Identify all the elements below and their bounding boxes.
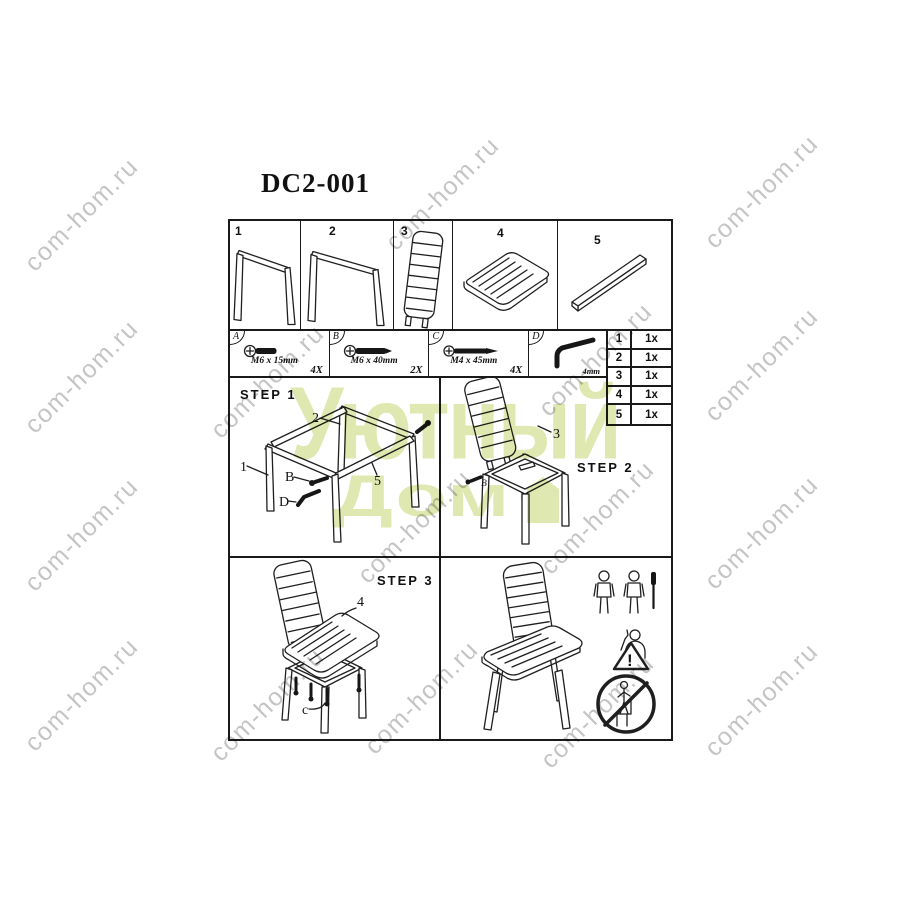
hardware-size: M4 x 45mm	[429, 356, 518, 366]
part-cell-3: 3	[394, 221, 453, 329]
step-3-panel: STEP 3	[228, 558, 441, 741]
callout-part-1: 1	[240, 460, 247, 475]
assembly-steps: STEP 1 1 2 5	[228, 376, 673, 741]
hardware-cell-c: C M4 x 45mm 4X	[429, 331, 529, 377]
qty-part: 1	[608, 331, 632, 350]
part-5-rail-drawing	[558, 227, 661, 328]
hardware-cell-d: D 4mm	[529, 331, 606, 377]
hardware-size: M6 x 40mm	[330, 356, 419, 366]
hardware-qty: 4X	[510, 365, 522, 376]
watermark-text: com-hom.ru	[19, 152, 144, 277]
part-3-backrest-drawing	[394, 227, 453, 330]
part-4-seat-drawing	[453, 227, 558, 328]
step-1-drawing: 1 2 5 B D	[230, 378, 438, 555]
qty-part: 3	[608, 368, 632, 387]
part-cell-1: 1	[230, 221, 301, 329]
qty-count: 1x	[632, 350, 671, 369]
model-title: DC2-001	[261, 168, 370, 199]
instruction-sheet: DC2-001 1 2 3	[228, 140, 673, 741]
callout-part-3: 3	[553, 427, 560, 442]
hardware-qty: 2X	[410, 365, 422, 376]
watermark-text: com-hom.ru	[19, 632, 144, 757]
qty-count: 1x	[632, 387, 671, 406]
part-cell-2: 2	[301, 221, 394, 329]
hardware-cell-a: A M6 x 15mm 4X	[230, 331, 330, 377]
callout-part-4: 4	[357, 595, 364, 610]
hardware-qty: 4X	[310, 365, 322, 376]
watermark-text: com-hom.ru	[699, 470, 824, 595]
watermark-text: com-hom.ru	[19, 472, 144, 597]
two-person-assembly-icon	[591, 570, 661, 626]
warning-icon: !	[595, 628, 657, 672]
hardware-cell-b: B M6 x 40mm 2X	[330, 331, 430, 377]
part-cell-5: 5	[558, 221, 671, 329]
page: DC2-001 1 2 3	[0, 0, 900, 900]
watermark-text: com-hom.ru	[19, 314, 144, 439]
callout-part-5: 5	[374, 474, 381, 489]
part-2-leg-frame-drawing	[301, 227, 394, 328]
callout-tool-d: D	[279, 495, 289, 510]
qty-part: 4	[608, 387, 632, 406]
part-cell-4: 4	[453, 221, 558, 329]
hardware-size: M6 x 15mm	[230, 356, 319, 366]
watermark-text: com-hom.ru	[699, 129, 824, 254]
callout-screw-c: c	[302, 703, 308, 718]
part-1-leg-frame-drawing	[230, 227, 301, 328]
qty-count: 1x	[632, 331, 671, 350]
watermark-text: com-hom.ru	[699, 637, 824, 762]
parts-table: 1 2 3	[228, 219, 673, 331]
finished-chair-panel: !	[441, 558, 673, 741]
callout-screw-b: B	[285, 470, 294, 485]
qty-count: 1x	[632, 368, 671, 387]
do-not-stand-icon	[593, 672, 659, 736]
qty-part: 5	[608, 405, 632, 424]
qty-count: 1x	[632, 405, 671, 424]
hardware-table: A M6 x 15mm 4X B M6 x 40mm 2X C	[228, 329, 608, 379]
step-3-drawing: c 4	[230, 558, 438, 737]
callout-part-2: 2	[312, 411, 319, 426]
hardware-size: 4mm	[583, 366, 600, 376]
callout-screw-b: B	[481, 479, 487, 489]
quantity-table: 1 1x 2 1x 3 1x 4 1x 5 1x	[606, 329, 673, 426]
watermark-text: com-hom.ru	[699, 302, 824, 427]
svg-text:!: !	[627, 651, 633, 670]
finished-chair-drawing	[449, 560, 599, 738]
qty-part: 2	[608, 350, 632, 369]
step-1-panel: STEP 1 1 2 5	[228, 376, 441, 558]
